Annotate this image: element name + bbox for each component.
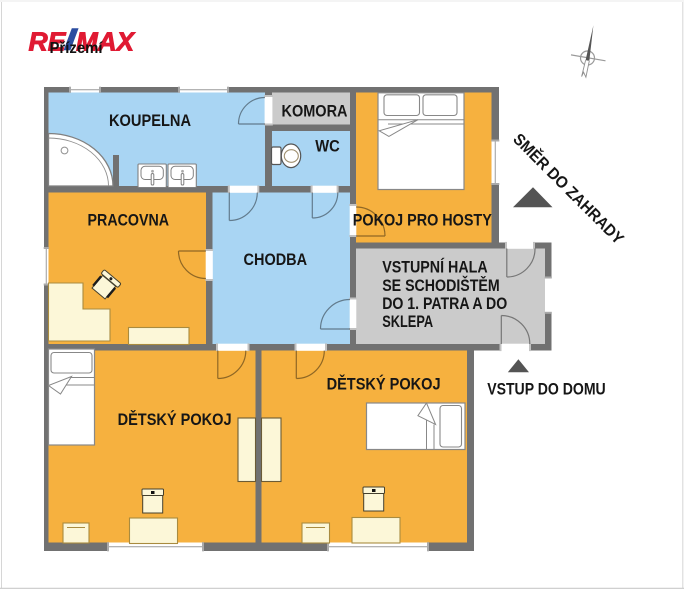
svg-text:SE SCHODIŠTĚM: SE SCHODIŠTĚM: [382, 276, 500, 295]
svg-text:KOUPELNA: KOUPELNA: [109, 112, 191, 130]
svg-text:VSTUPNÍ HALA: VSTUPNÍ HALA: [382, 257, 488, 276]
svg-text:VSTUP DO DOMU: VSTUP DO DOMU: [487, 380, 606, 398]
svg-text:DO 1. PATRA A DO: DO 1. PATRA A DO: [382, 295, 507, 313]
svg-text:PRACOVNA: PRACOVNA: [88, 211, 170, 229]
svg-text:CHODBA: CHODBA: [244, 251, 308, 269]
svg-text:Přízemí: Přízemí: [50, 40, 104, 57]
svg-text:SKLEPA: SKLEPA: [382, 313, 433, 331]
svg-text:DĚTSKÝ POKOJ: DĚTSKÝ POKOJ: [327, 375, 441, 394]
svg-text:WC: WC: [315, 138, 340, 156]
svg-text:KOMORA: KOMORA: [282, 103, 348, 121]
svg-text:POKOJ PRO HOSTY: POKOJ PRO HOSTY: [353, 211, 492, 229]
svg-text:DĚTSKÝ POKOJ: DĚTSKÝ POKOJ: [118, 410, 232, 429]
